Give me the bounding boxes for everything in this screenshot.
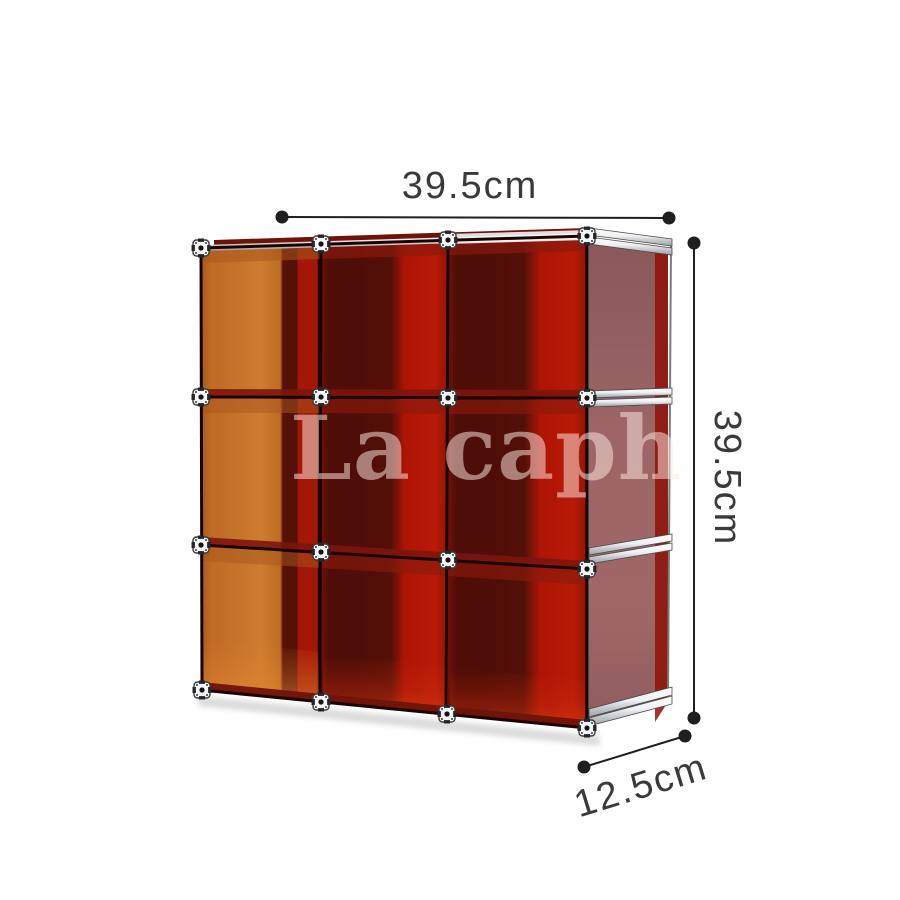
cell-r1-c3 — [448, 236, 587, 398]
corner-connector-clip — [193, 681, 212, 700]
watermark-text: La caph — [290, 396, 683, 500]
corner-connector-clip — [312, 543, 331, 562]
dimension-endpoint-dot — [688, 237, 701, 250]
corner-connector-clip — [578, 227, 597, 246]
corner-connector-clip — [578, 719, 597, 738]
dimension-endpoint-dot — [578, 761, 591, 774]
corner-connector-clip — [578, 560, 597, 579]
dimension-endpoint-dot — [679, 730, 692, 743]
corner-connector-clip — [192, 388, 211, 407]
cell-r1-c2 — [321, 240, 448, 398]
dimension-endpoint-dot — [688, 712, 701, 725]
corner-connector-clip — [192, 536, 211, 555]
corner-connector-clip — [439, 551, 458, 570]
height-dimension-label: 39.5cm — [705, 328, 749, 628]
width-dimension-label: 39.5cm — [320, 164, 620, 208]
corner-connector-clip — [312, 235, 331, 254]
dimension-endpoint-dot — [276, 211, 289, 224]
corner-connector-clip — [438, 705, 457, 724]
width-dimension-line — [282, 217, 669, 218]
cell-r1-c1 — [201, 244, 321, 397]
column-edge — [201, 246, 202, 692]
product-image: 39.5cm 39.5cm 12.5cm La caph — [0, 0, 900, 900]
corner-connector-clip — [192, 239, 211, 258]
corner-connector-clip — [312, 693, 331, 712]
dimension-endpoint-dot — [663, 212, 676, 225]
corner-connector-clip — [439, 231, 458, 250]
